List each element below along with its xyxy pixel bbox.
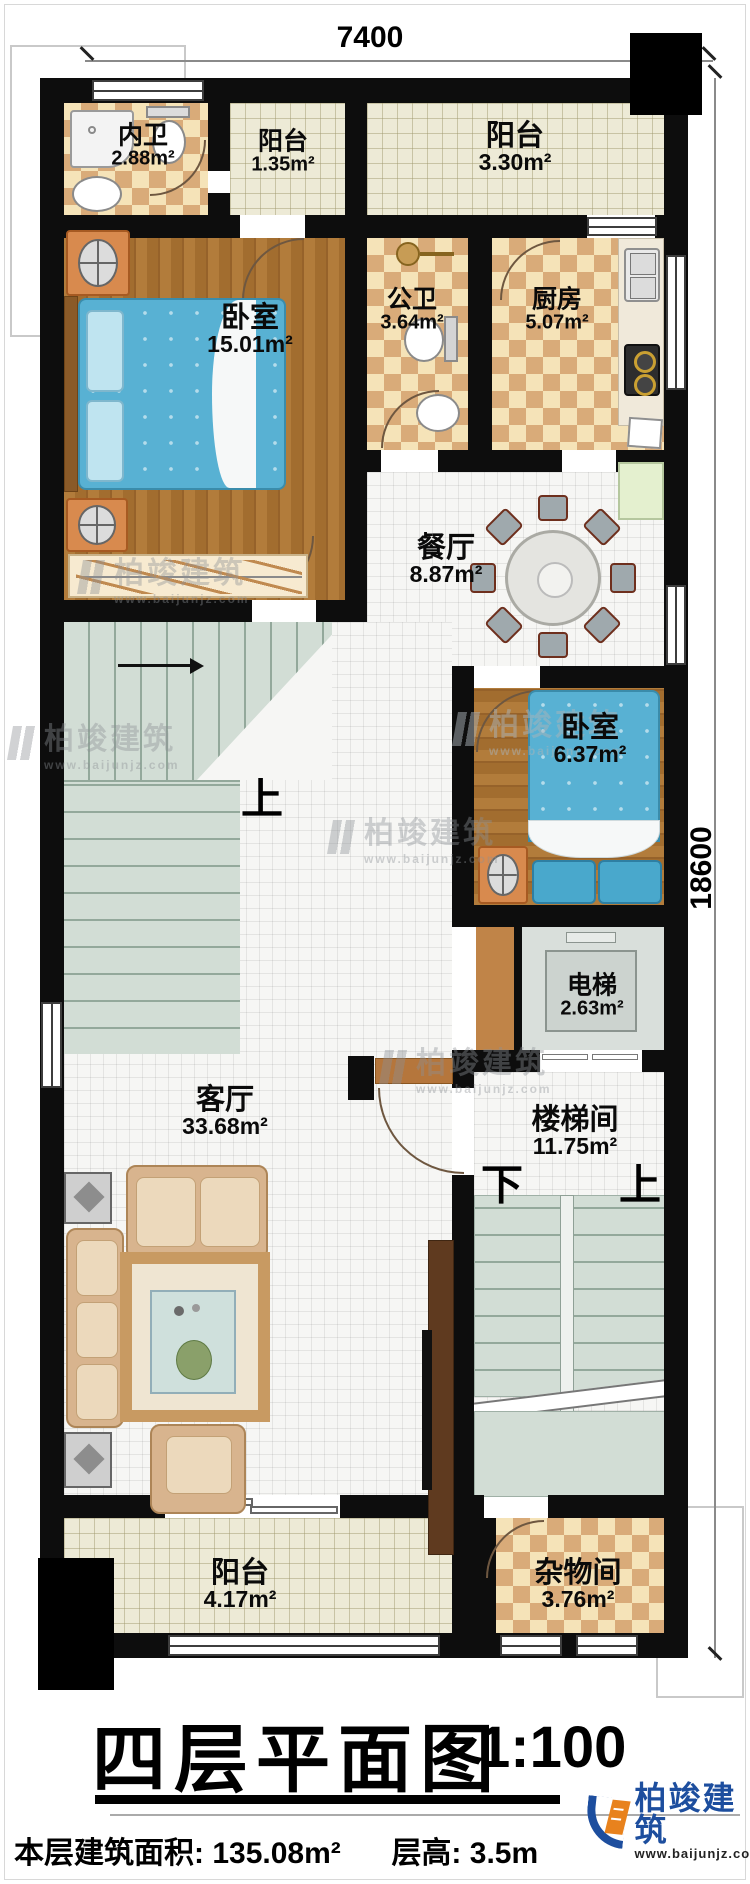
room-area: 2.88m² (111, 149, 174, 170)
room-name: 内卫 (118, 123, 168, 149)
brand-logo: 柏竣建筑 www.baijunjz.com (586, 1782, 750, 1861)
room-label-balcony-b: 阳台 4.17m² (204, 1558, 277, 1612)
room-label-balcony-tl: 阳台 1.35m² (251, 129, 314, 176)
room-name: 厨房 (532, 287, 582, 313)
dimension-top-value: 7400 (337, 21, 404, 55)
room-label-living: 客厅 33.68m² (182, 1085, 268, 1139)
brand-logo-icon (583, 1795, 627, 1849)
pillow (532, 860, 596, 904)
info-line: 本层建筑面积: 135.08m² 层高: 3.5m (14, 1828, 538, 1872)
wall-int (345, 78, 367, 622)
stair-up-label-inner: 上 (241, 766, 283, 827)
nightstand (66, 230, 130, 296)
stairwell-stairs (474, 1195, 664, 1495)
lamp (78, 505, 117, 545)
watermark-logo-icon (452, 712, 484, 746)
room-area: 33.68m² (182, 1115, 268, 1139)
window (41, 1002, 62, 1088)
kitchen-sink (624, 248, 660, 302)
room-name: 餐厅 (417, 533, 475, 563)
sofa-single (150, 1424, 246, 1514)
toilet-tank (146, 106, 190, 118)
watermark: 柏竣建筑 www.baijunjz.com (80, 548, 250, 606)
tv (422, 1330, 432, 1490)
lamp (78, 239, 118, 288)
room-name: 杂物间 (534, 1558, 621, 1588)
wall-int (452, 905, 664, 927)
toilet-tank (444, 316, 458, 362)
room-area: 4.17m² (204, 1588, 277, 1612)
window (666, 255, 686, 390)
coffee-table (150, 1290, 236, 1394)
wall-int (438, 450, 562, 472)
wall-int (367, 450, 381, 472)
window (666, 585, 686, 665)
brand-building-icon (604, 1799, 630, 1834)
stair-down-label: 下 (481, 1152, 523, 1213)
pillow (86, 310, 124, 392)
pillow (86, 400, 124, 482)
elevator-counterweight (566, 932, 616, 943)
sliding-door (250, 1506, 338, 1514)
stair-flight-right (572, 1195, 666, 1397)
room-area: 1.35m² (251, 155, 314, 176)
wall-int (468, 215, 492, 472)
wall-int (642, 1050, 664, 1072)
room-label-balcony-tr: 阳台 3.30m² (479, 121, 552, 175)
sofa-cushion (76, 1364, 118, 1420)
elevator-door (592, 1054, 638, 1060)
watermark: 柏竣建筑 www.baijunjz.com (382, 1038, 552, 1096)
dining-chair (610, 563, 636, 593)
room-name: 阳台 (211, 1558, 269, 1588)
watermark-logo-icon (327, 820, 359, 854)
room-area: 3.76m² (542, 1588, 615, 1612)
floor-plan-page: 7400 18600 (0, 0, 750, 1884)
stair-arrow-head (190, 658, 204, 674)
info-area: 本层建筑面积: 135.08m² (14, 1837, 341, 1870)
dining-table (505, 530, 601, 626)
wall-int (208, 103, 230, 171)
side-table (64, 1172, 112, 1224)
watermark: 柏竣建筑 www.baijunjz.com (10, 714, 180, 772)
watermark-brand: 柏竣建筑 (114, 548, 250, 592)
room-name: 阳台 (486, 121, 544, 151)
title-underline (95, 1795, 560, 1804)
window (500, 1635, 562, 1656)
sofa-cushion (136, 1177, 196, 1247)
sofa-top (126, 1165, 268, 1260)
bed-headboard (64, 296, 78, 492)
column-top-right (630, 33, 702, 115)
room-area: 15.01m² (207, 333, 293, 357)
room-label-stairwell: 楼梯间 11.75m² (531, 1105, 618, 1159)
dining-chair (538, 495, 568, 521)
room-name: 楼梯间 (531, 1105, 618, 1135)
stair-direction-arrow (118, 664, 192, 667)
room-name: 客厅 (196, 1085, 254, 1115)
wall-int (208, 193, 230, 215)
nightstand (66, 498, 128, 552)
stair-up-label-outer: 上 (619, 1152, 661, 1213)
sink (416, 394, 460, 432)
room-area: 11.75m² (533, 1135, 617, 1159)
window (168, 1635, 440, 1656)
wall-int (474, 1495, 484, 1518)
watermark-brand: 柏竣建筑 (44, 714, 180, 758)
watermark: 柏竣建筑 www.baijunjz.com (330, 808, 500, 866)
wall-exterior-left (40, 78, 64, 1658)
column-bottom-left (38, 1558, 114, 1690)
info-height: 层高: 3.5m (391, 1837, 538, 1870)
stair-landing (474, 1411, 666, 1497)
stair-diagonal-cut (182, 622, 332, 780)
plan-scale: 1:100 (478, 1714, 626, 1781)
watermark-url: www.baijunjz.com (416, 1082, 552, 1096)
gas-stove (624, 344, 660, 396)
room-label-storage: 杂物间 3.76m² (534, 1558, 621, 1612)
room-name: 阳台 (258, 129, 308, 155)
room-label-dining: 餐厅 8.87m² (410, 533, 483, 587)
wall-int (316, 600, 345, 622)
window (92, 80, 204, 101)
wall-int (540, 666, 664, 688)
watermark-logo-icon (77, 560, 109, 594)
watermark-logo-icon (379, 1050, 411, 1084)
wall-int (452, 1175, 474, 1633)
watermark-logo-icon (7, 726, 39, 760)
room-name: 电梯 (567, 973, 617, 999)
watermark-brand: 柏竣建筑 (364, 808, 500, 852)
plan-title: 四层平面图 (92, 1700, 502, 1807)
brand-name: 柏竣建筑 (635, 1782, 750, 1846)
shower-arm (420, 252, 454, 256)
sofa-left (66, 1228, 124, 1428)
room-area: 8.87m² (410, 563, 483, 587)
wall-int (348, 1056, 374, 1100)
dimension-line-top (85, 60, 713, 62)
room-name: 卧室 (221, 303, 279, 333)
inner-stair-lower-run (64, 780, 240, 1054)
watermark-url: www.baijunjz.com (44, 758, 180, 772)
sofa-cushion (76, 1302, 118, 1358)
watermark-url: www.baijunjz.com (364, 852, 500, 866)
room-area: 3.30m² (479, 151, 552, 175)
room-label-bedroom-small: 卧室 6.37m² (554, 713, 627, 767)
dining-cabinet (618, 462, 664, 520)
corridor-closet (476, 927, 514, 1050)
watermark-url: www.baijunjz.com (114, 592, 250, 606)
room-label-elevator: 电梯 2.63m² (560, 973, 623, 1020)
sofa-cushion (76, 1240, 118, 1296)
wall-int (548, 1495, 664, 1518)
sink (72, 176, 122, 212)
shower-drain (88, 126, 96, 134)
room-area: 2.63m² (560, 999, 623, 1020)
wall-int (514, 927, 522, 1050)
room-name: 公卫 (387, 287, 437, 313)
watermark-brand: 柏竣建筑 (416, 1038, 552, 1082)
room-label-neiwei: 内卫 2.88m² (111, 123, 174, 170)
stair-flight-left (474, 1195, 562, 1397)
room-label-public-bath: 公卫 3.64m² (380, 287, 443, 334)
dimension-right-value: 18600 (685, 826, 719, 909)
side-table (64, 1432, 112, 1488)
brand-url: www.baijunjz.com (635, 1846, 750, 1861)
room-area: 6.37m² (554, 743, 627, 767)
kitchen-cabinet (627, 417, 663, 449)
room-area: 5.07m² (525, 313, 588, 334)
dining-chair (538, 632, 568, 658)
sofa-cushion (200, 1177, 260, 1247)
window (587, 217, 657, 236)
sofa-cushion (166, 1436, 232, 1494)
window (576, 1635, 638, 1656)
pillow (598, 860, 662, 904)
room-label-bedroom-main: 卧室 15.01m² (207, 303, 293, 357)
room-area: 3.64m² (380, 313, 443, 334)
room-label-kitchen: 厨房 5.07m² (525, 287, 588, 334)
shower-head (396, 242, 420, 266)
room-name: 卧室 (561, 713, 619, 743)
